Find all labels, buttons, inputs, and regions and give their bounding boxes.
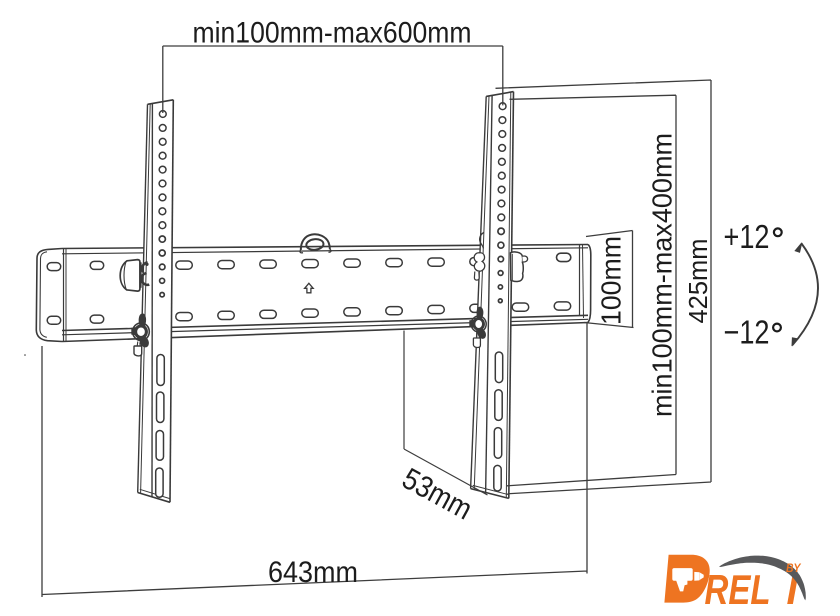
svg-text:643mm: 643mm: [268, 556, 358, 589]
svg-text:425mm: 425mm: [685, 239, 713, 324]
svg-text:−12: −12: [724, 315, 770, 352]
svg-text:REL: REL: [705, 566, 771, 613]
svg-text:min100mm-max400mm: min100mm-max400mm: [647, 133, 678, 417]
svg-text:+12: +12: [724, 219, 770, 256]
svg-text:BY: BY: [786, 563, 802, 575]
svg-text:100mm: 100mm: [596, 236, 627, 325]
svg-text:min100mm-max600mm: min100mm-max600mm: [193, 17, 472, 50]
